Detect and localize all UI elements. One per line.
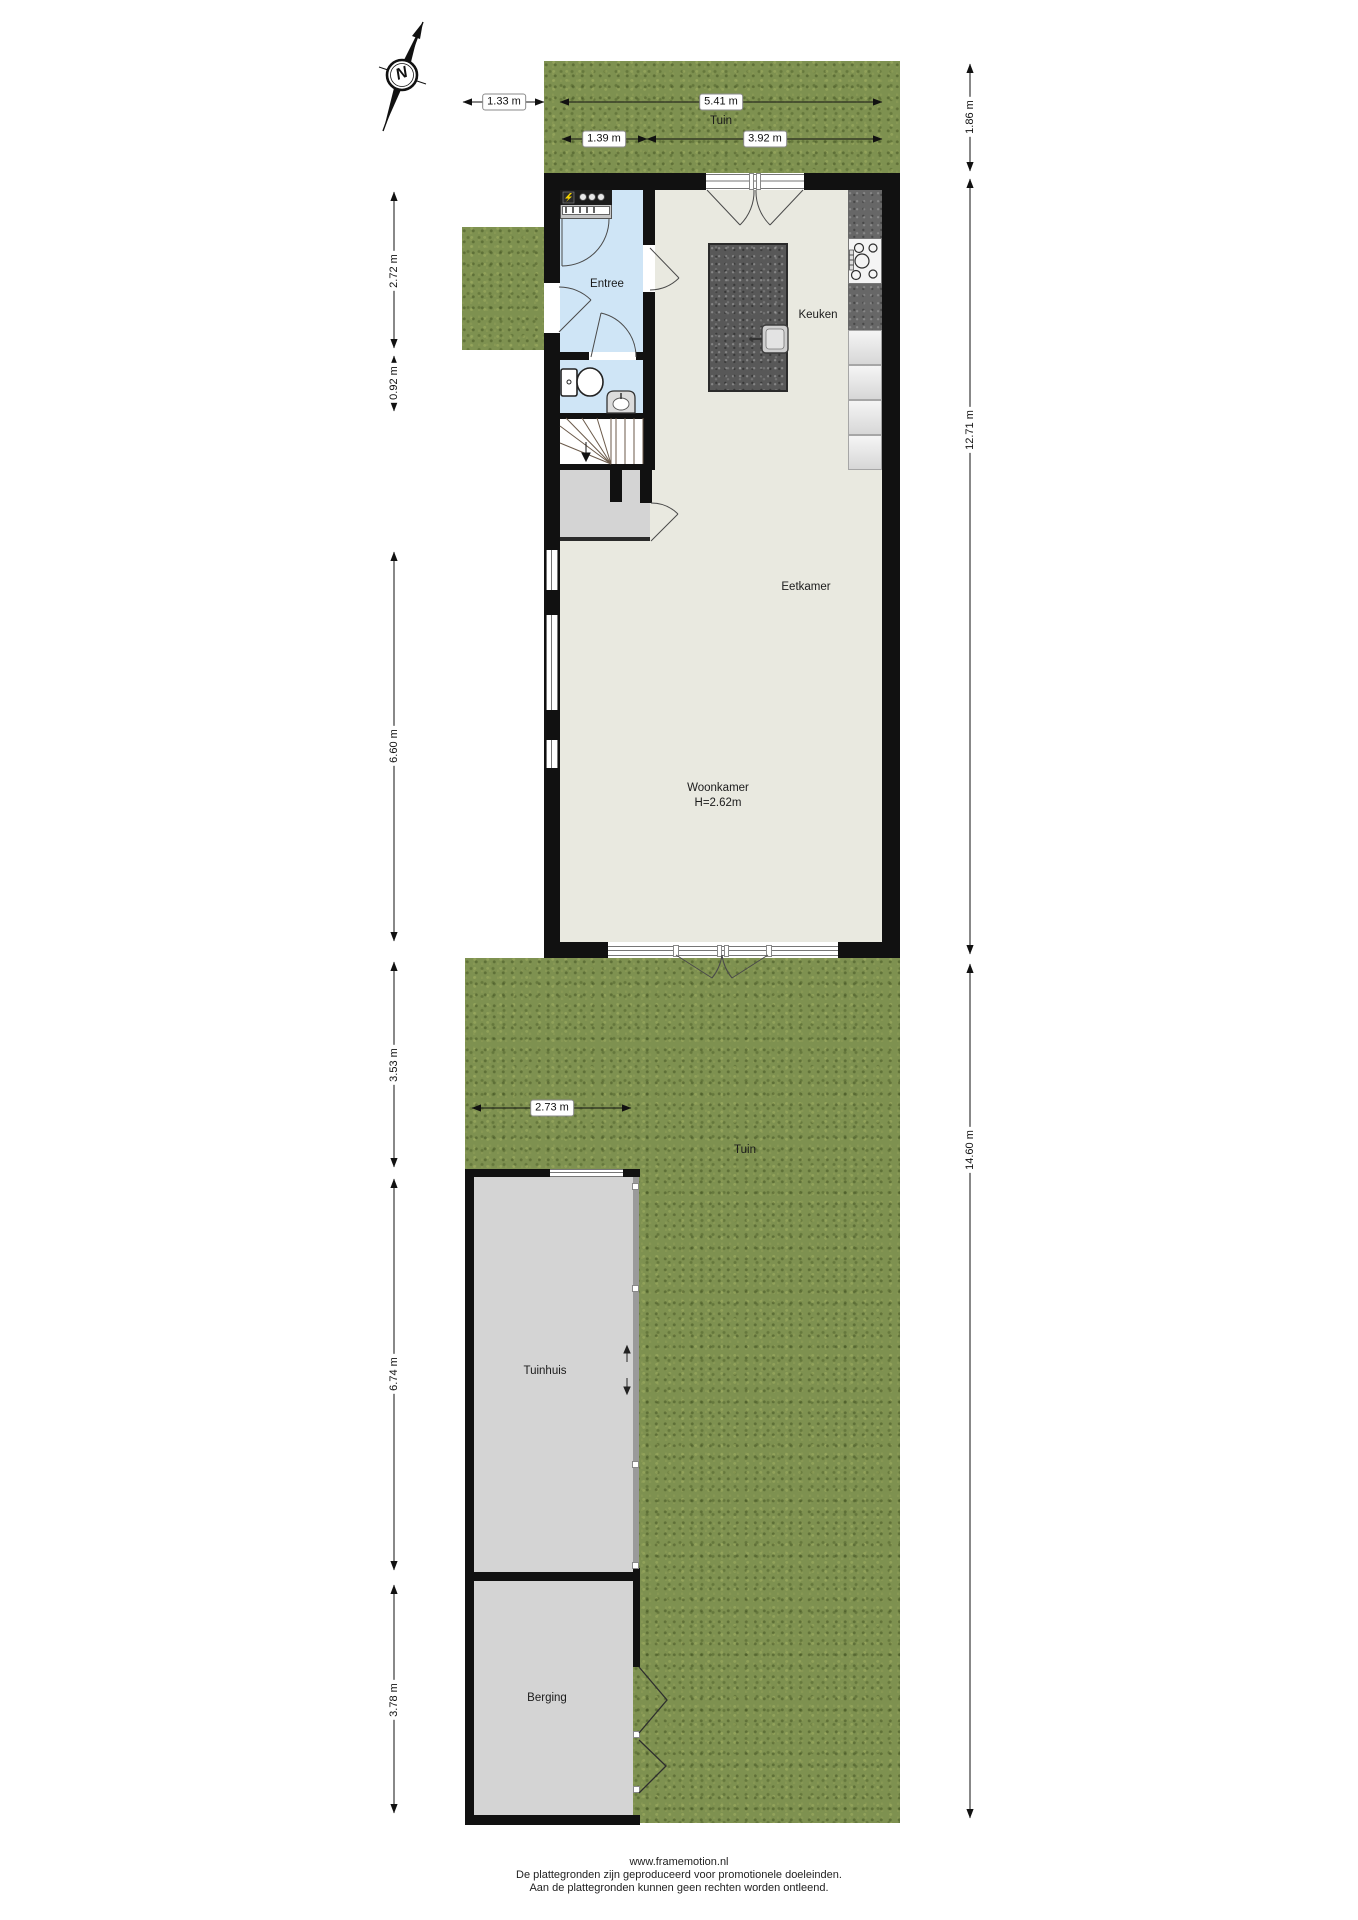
sink-icon — [749, 325, 788, 353]
dim-top-side: 1.33 m — [482, 94, 526, 111]
floorplan-page: N 1.33 m 5.41 m 1.39 m 3.92 m 2.73 m 2.7… — [0, 0, 1358, 1920]
dim-left-toilet: 0.92 m — [387, 363, 401, 403]
meter-icons — [563, 192, 604, 213]
label-berging: Berging — [527, 1692, 567, 1704]
label-tuin-bottom: Tuin — [734, 1144, 756, 1156]
door-swings — [559, 190, 803, 978]
dim-left-berging: 3.78 m — [387, 1680, 401, 1720]
dim-left-garden-strip: 3.53 m — [387, 1045, 401, 1085]
label-keuken: Keuken — [798, 309, 837, 321]
berging-doors — [639, 1667, 667, 1793]
label-woonkamer: Woonkamer — [687, 782, 749, 794]
hob-icon — [850, 244, 878, 280]
washbasin-icon — [607, 391, 635, 413]
dimension-lines — [394, 64, 970, 1818]
label-entree: Entree — [590, 278, 624, 290]
tuinhuis-arrows — [624, 1346, 630, 1394]
footer-disclaimer-1: De plattegronden zijn geproduceerd voor … — [0, 1869, 1358, 1882]
dim-top-entree: 1.39 m — [582, 131, 626, 148]
dim-right-garden-bottom: 14.60 m — [963, 1127, 977, 1173]
label-eetkamer: Eetkamer — [781, 581, 830, 593]
toilet-icon — [561, 368, 603, 396]
label-tuin-top: Tuin — [710, 115, 732, 127]
dim-top-main: 3.92 m — [743, 131, 787, 148]
label-tuinhuis: Tuinhuis — [523, 1365, 566, 1377]
dim-right-garden-top: 1.86 m — [963, 97, 977, 137]
dim-left-tuinhuis: 6.74 m — [387, 1354, 401, 1394]
dim-tuinhuis-width: 2.73 m — [530, 1100, 574, 1117]
dim-left-entree: 2.72 m — [387, 251, 401, 291]
stairs-direction-arrow — [582, 442, 590, 461]
footer-disclaimer-2: Aan de plattegronden kunnen geen rechten… — [0, 1882, 1358, 1895]
dim-right-house: 12.71 m — [963, 407, 977, 453]
plan-linework — [0, 0, 1358, 1920]
dim-top-total: 5.41 m — [699, 94, 743, 111]
dim-left-woonkamer: 6.60 m — [387, 726, 401, 766]
footer-website: www.framemotion.nl — [0, 1856, 1358, 1869]
label-woonkamer-height: H=2.62m — [695, 797, 742, 809]
stairs — [560, 418, 643, 464]
